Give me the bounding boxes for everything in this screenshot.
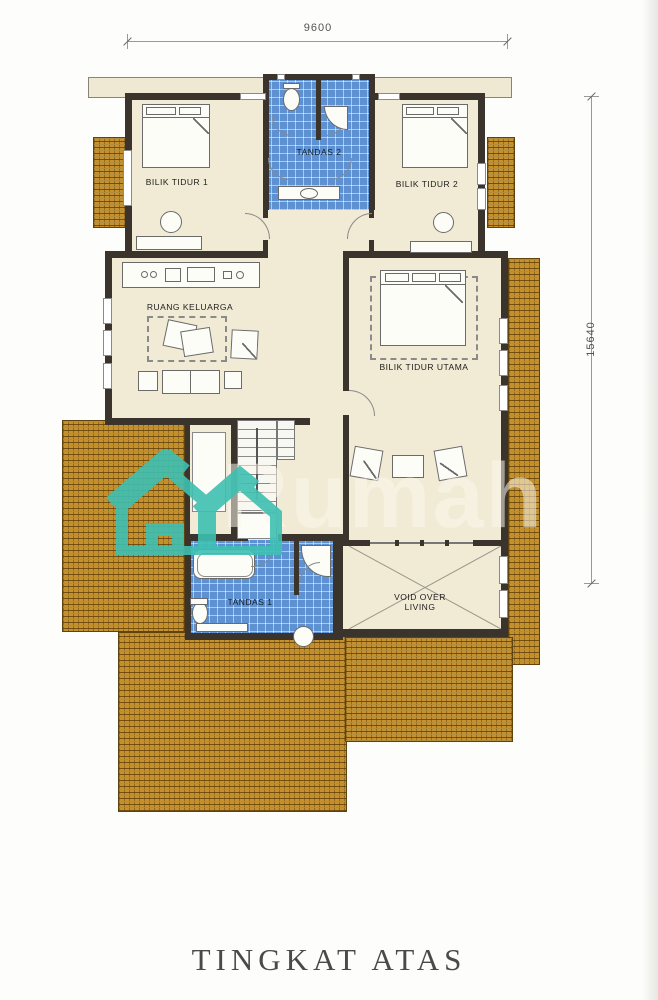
- wall-segment: [263, 210, 268, 218]
- top-dimension-line: [128, 41, 508, 42]
- scan-edge-shadow: [642, 0, 658, 1000]
- window: [477, 188, 486, 210]
- room-label-void: VOID OVER LIVING: [370, 592, 470, 612]
- wall-segment: [343, 629, 508, 637]
- sofa-cushion-line: [190, 371, 191, 393]
- tv-console: [122, 262, 260, 288]
- chair: [433, 212, 454, 233]
- pillow: [179, 107, 201, 115]
- right-dimension-label: 15640: [585, 309, 597, 369]
- void-cross-lines: [349, 546, 501, 629]
- wall-segment: [263, 240, 268, 258]
- window: [499, 350, 508, 376]
- roof-patch-top-right: [487, 137, 515, 228]
- sofa: [162, 370, 220, 394]
- void-label-line1: VOID OVER: [370, 592, 470, 602]
- blanket-fold: [445, 285, 463, 303]
- wall-segment: [185, 633, 338, 640]
- wall-segment: [316, 74, 321, 140]
- room-label-bilik-tidur-utama: BILIK TIDUR UTAMA: [364, 362, 484, 372]
- ornament: [236, 271, 244, 279]
- wall-segment: [333, 534, 343, 640]
- pillow: [146, 107, 176, 115]
- master-bed: [380, 270, 466, 346]
- room-label-tandas-2: TANDAS 2: [269, 147, 369, 157]
- wall-segment: [369, 74, 375, 210]
- roof-patch-top-left: [93, 137, 127, 228]
- vent-window: [352, 74, 360, 80]
- toilet: [283, 88, 300, 111]
- vanity-counter: [196, 623, 248, 632]
- chair: [160, 211, 182, 233]
- coffee-table: [180, 327, 214, 357]
- window: [499, 385, 508, 411]
- speaker: [150, 271, 157, 278]
- bathtub-inner: [197, 553, 253, 577]
- void-label-line2: LIVING: [370, 602, 470, 612]
- window: [499, 318, 508, 344]
- bed: [402, 104, 468, 168]
- pillow: [437, 107, 459, 115]
- window: [378, 93, 400, 100]
- media-unit: [165, 268, 181, 282]
- tv: [187, 267, 215, 282]
- pillow: [439, 273, 461, 282]
- wall-segment: [369, 240, 374, 258]
- floor-plan-sheet: 9600 15640: [0, 0, 658, 1000]
- window: [103, 363, 112, 389]
- pedestal-sink: [293, 626, 314, 647]
- speaker: [141, 271, 148, 278]
- window: [240, 93, 266, 100]
- armchair-cushion: [241, 343, 257, 359]
- wall-segment: [343, 251, 349, 391]
- top-dimension-label: 9600: [288, 22, 348, 34]
- blanket-fold: [193, 118, 209, 134]
- room-label-tandas-1: TANDAS 1: [200, 597, 300, 607]
- window: [103, 330, 112, 356]
- armchair: [230, 329, 258, 359]
- window: [103, 298, 112, 324]
- pillow: [412, 273, 436, 282]
- sink: [300, 188, 318, 199]
- vent-window: [277, 74, 285, 80]
- desk: [410, 241, 472, 253]
- irumah-house-logo: [106, 450, 296, 555]
- bed: [142, 104, 210, 168]
- side-table: [138, 371, 158, 391]
- roof-bottom-right: [345, 637, 513, 742]
- roof-bottom-left: [118, 632, 347, 812]
- room-label-bilik-tidur-2: BILIK TIDUR 2: [377, 179, 477, 189]
- pillow: [385, 273, 409, 282]
- pillow: [406, 107, 434, 115]
- window: [477, 163, 486, 185]
- side-table: [224, 371, 242, 389]
- toilet-tank: [283, 83, 300, 89]
- blanket-fold: [451, 118, 467, 134]
- desk: [136, 236, 202, 250]
- room-label-bilik-tidur-1: BILIK TIDUR 1: [127, 177, 227, 187]
- room-label-ruang-keluarga: RUANG KELUARGA: [140, 302, 240, 312]
- ornament: [223, 271, 232, 279]
- sheet-title: TINGKAT ATAS: [0, 942, 658, 978]
